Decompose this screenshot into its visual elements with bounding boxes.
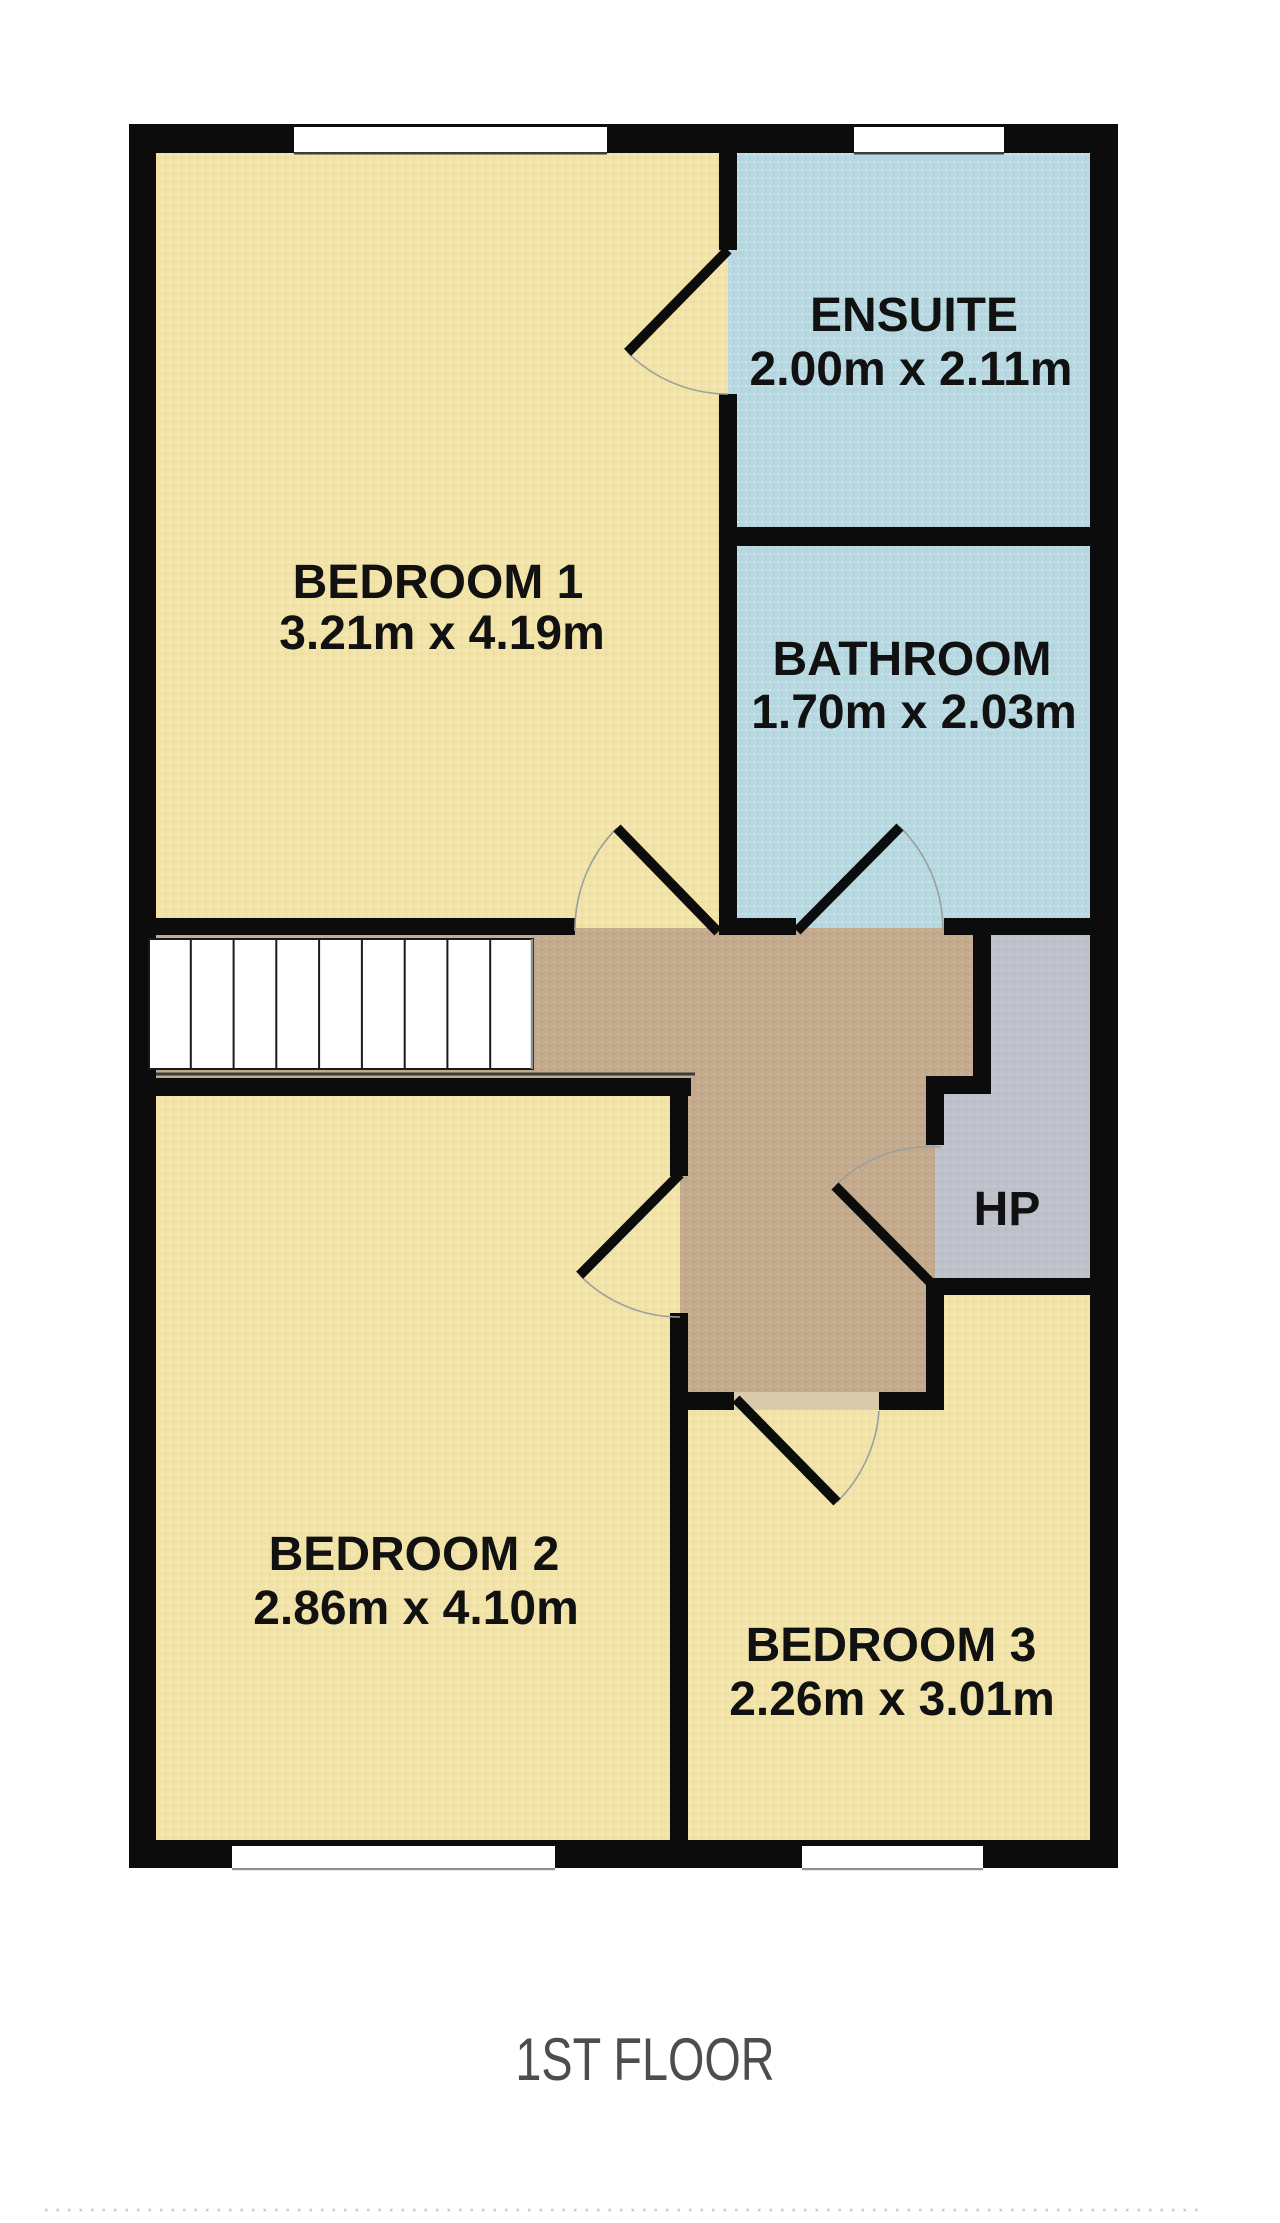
svg-text:1.70m x 2.03m: 1.70m x 2.03m xyxy=(751,686,1077,739)
svg-text:2.00m x 2.11m: 2.00m x 2.11m xyxy=(750,343,1073,396)
svg-text:BATHROOM: BATHROOM xyxy=(772,633,1051,686)
svg-text:HP: HP xyxy=(974,1183,1041,1236)
svg-text:ENSUITE: ENSUITE xyxy=(810,289,1018,342)
svg-text:2.86m x 4.10m: 2.86m x 4.10m xyxy=(253,1582,579,1635)
svg-text:BEDROOM 3: BEDROOM 3 xyxy=(746,1619,1037,1672)
svg-text:3.21m x 4.19m: 3.21m x 4.19m xyxy=(279,607,605,660)
svg-text:1ST FLOOR: 1ST FLOOR xyxy=(515,2026,774,2093)
svg-text:BEDROOM 1: BEDROOM 1 xyxy=(293,556,584,609)
svg-text:2.26m x 3.01m: 2.26m x 3.01m xyxy=(729,1673,1055,1726)
svg-text:BEDROOM 2: BEDROOM 2 xyxy=(269,1528,560,1581)
